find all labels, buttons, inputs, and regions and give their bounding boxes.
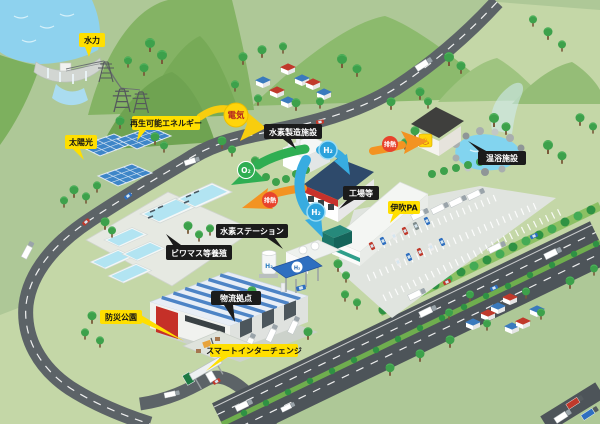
svg-text:再生可能エネルギー: 再生可能エネルギー [130,118,202,128]
svg-text:太陽光: 太陽光 [68,137,93,147]
o2-badge: O₂ [238,162,255,179]
svg-text:防災公園: 防災公園 [105,312,137,322]
svg-text:温浴施設: 温浴施設 [486,153,519,163]
reservoir [0,0,100,64]
svg-text:ビワマス等養殖: ビワマス等養殖 [171,248,227,258]
powerhouse [60,63,71,71]
scene: ♨ H₂ H₂ [0,0,600,424]
svg-text:排熱: 排熱 [264,197,277,205]
svg-text:H₂: H₂ [265,263,273,270]
dispenser [281,283,285,292]
svg-text:H₂: H₂ [294,266,300,272]
electricity-badge: 電気 [224,103,248,127]
svg-text:物流拠点: 物流拠点 [220,293,252,303]
svg-text:水素ステーション: 水素ステーション [219,226,284,236]
svg-text:工場等: 工場等 [349,188,373,198]
h2-badge-bottom: H₂ [307,203,325,221]
svg-text:スマートインターチェンジ: スマートインターチェンジ [206,346,302,356]
svg-text:電気: 電気 [227,110,245,121]
svg-text:排熱: 排熱 [384,141,397,149]
h2-badge-top: H₂ [319,141,337,159]
heat-badge-left: 排熱 [262,192,278,208]
svg-text:伊吹PA: 伊吹PA [389,203,418,213]
svg-text:水力: 水力 [83,35,100,45]
svg-text:水素製造施設: 水素製造施設 [268,127,318,137]
svg-text:H₂: H₂ [311,208,321,217]
heat-badge-right: 排熱 [382,136,398,152]
svg-text:O₂: O₂ [241,166,251,175]
illustration-map: ♨ H₂ H₂ [0,0,600,424]
svg-text:H₂: H₂ [323,146,333,155]
